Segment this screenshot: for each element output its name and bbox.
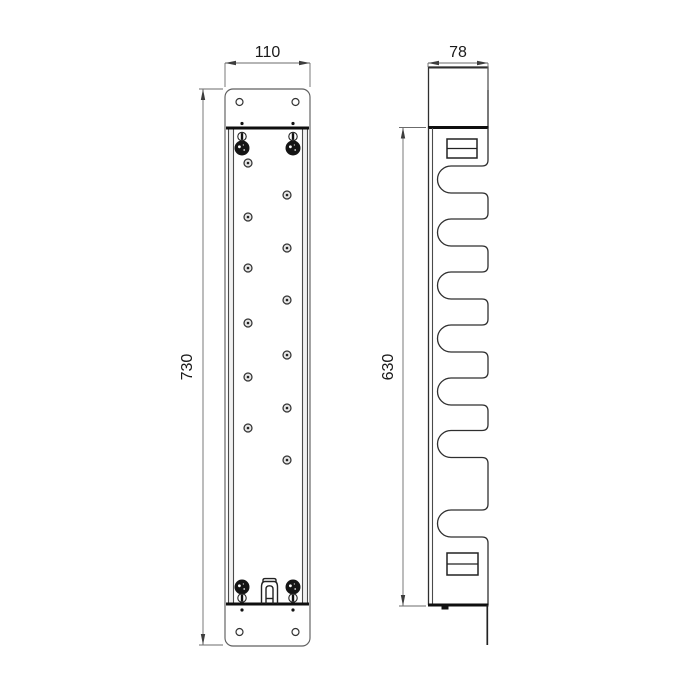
plate-hole — [236, 99, 243, 106]
screw-highlight — [243, 144, 244, 145]
wall-fixing-hole-center — [286, 459, 289, 462]
wall-fixing-hole-center — [286, 194, 289, 197]
plate-hole — [292, 629, 299, 636]
wall-fixing-hole-center — [286, 407, 289, 410]
wall-fixing-hole-center — [247, 162, 250, 165]
arrowhead-icon — [201, 634, 205, 645]
wall-fixing-hole-center — [247, 267, 250, 270]
dim-label-front-width: 110 — [255, 44, 281, 61]
screw-highlight — [243, 583, 244, 584]
wall-fixing-hole-center — [247, 322, 250, 325]
index-dot — [240, 122, 243, 125]
technical-drawing-page: 110 78 730 630 — [0, 0, 700, 700]
wall-fixing-hole-center — [286, 247, 289, 250]
arrowhead-icon — [401, 595, 405, 606]
screw-highlight — [243, 588, 245, 590]
dim-label-side-width: 78 — [449, 44, 467, 61]
dim-label-front-height: 730 — [179, 354, 196, 381]
front-left-flange — [229, 128, 234, 604]
corner-screw — [286, 141, 301, 156]
screw-highlight — [294, 149, 296, 151]
side-generated-details — [442, 139, 479, 610]
arrowhead-icon — [428, 61, 439, 65]
screw-highlight — [289, 145, 292, 148]
index-dot — [291, 608, 294, 611]
arrowhead-icon — [201, 89, 205, 100]
plate-hole — [292, 99, 299, 106]
side-bottom-tab — [442, 606, 449, 610]
dimension-front-width: 110 — [225, 44, 310, 87]
wall-fixing-hole-center — [247, 427, 250, 430]
screw-highlight — [294, 588, 296, 590]
screw-highlight — [238, 145, 241, 148]
side-view — [428, 67, 489, 645]
wall-fixing-hole-center — [247, 376, 250, 379]
index-dot — [291, 122, 294, 125]
arrowhead-icon — [401, 128, 405, 139]
front-back-plate — [225, 89, 310, 646]
screw-highlight — [238, 584, 241, 587]
corner-screw — [235, 580, 250, 595]
arrowhead-icon — [477, 61, 488, 65]
index-dot — [240, 608, 243, 611]
corner-screw — [235, 141, 250, 156]
screw-highlight — [289, 584, 292, 587]
front-view — [225, 89, 310, 646]
screw-highlight — [294, 583, 295, 584]
dimension-front-height: 730 — [179, 89, 223, 645]
front-right-flange — [303, 128, 308, 604]
plate-hole — [236, 629, 243, 636]
wall-fixing-hole-center — [286, 299, 289, 302]
side-top-cap — [429, 67, 489, 128]
screw-highlight — [294, 144, 295, 145]
corner-screw — [286, 580, 301, 595]
wall-fixing-hole-center — [247, 216, 250, 219]
side-hook-profile — [437, 128, 488, 606]
dimension-side-height: 630 — [380, 128, 426, 607]
wall-fixing-hole-center — [286, 354, 289, 357]
technical-drawing-canvas: 110 78 730 630 — [0, 0, 700, 700]
arrowhead-icon — [225, 61, 236, 65]
dim-label-side-height: 630 — [380, 354, 397, 381]
screw-highlight — [243, 149, 245, 151]
arrowhead-icon — [299, 61, 310, 65]
